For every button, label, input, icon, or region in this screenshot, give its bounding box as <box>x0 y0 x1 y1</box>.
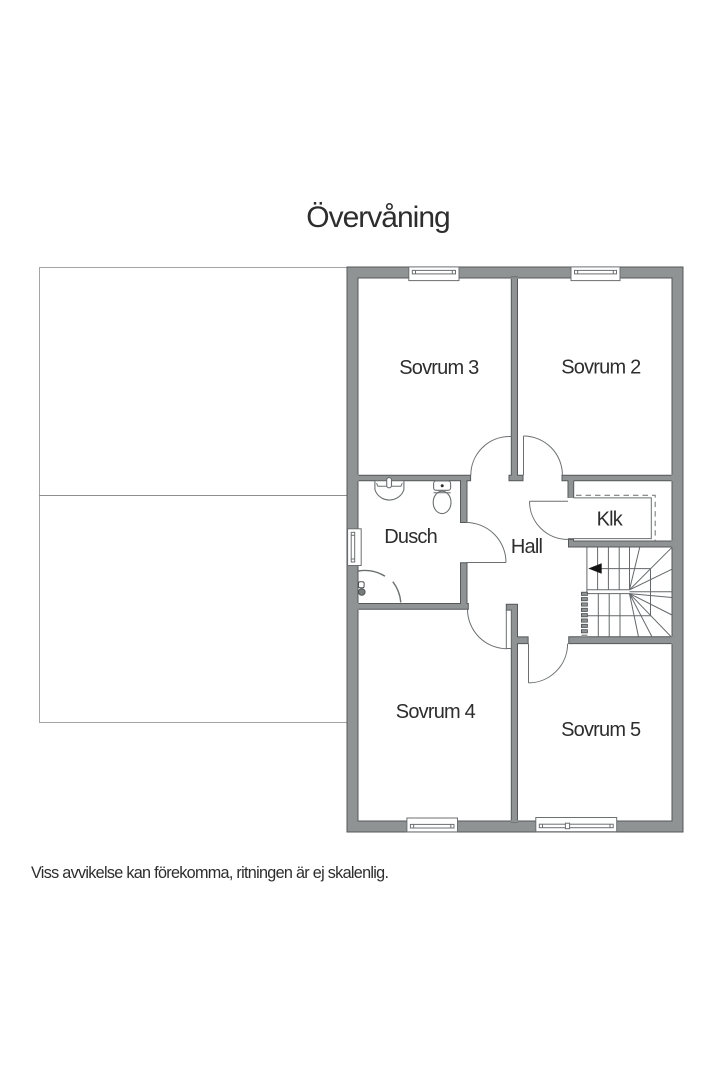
svg-text:Dusch: Dusch <box>384 526 437 548</box>
svg-text:Klk: Klk <box>597 509 624 531</box>
svg-text:Övervåning: Övervåning <box>306 201 449 234</box>
svg-text:Viss avvikelse kan förekomma,: Viss avvikelse kan förekomma, ritningen … <box>31 864 388 882</box>
svg-text:Sovrum 5: Sovrum 5 <box>561 719 641 741</box>
svg-text:Sovrum 3: Sovrum 3 <box>399 357 479 379</box>
svg-text:Sovrum 4: Sovrum 4 <box>396 701 476 723</box>
svg-text:Hall: Hall <box>511 536 543 558</box>
svg-text:Sovrum 2: Sovrum 2 <box>561 357 641 379</box>
